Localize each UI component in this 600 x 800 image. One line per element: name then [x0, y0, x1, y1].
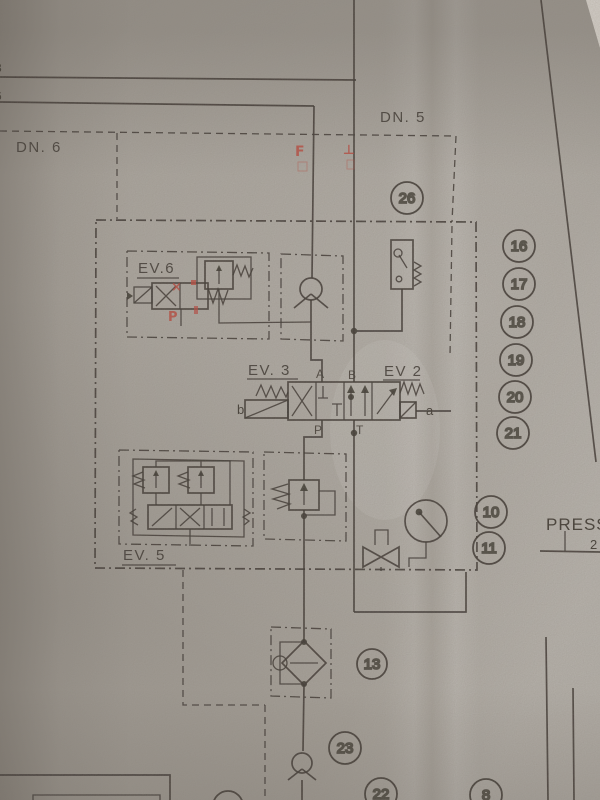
schematic-drawing: 26 16 17 18 19 20 21 10 11 13 23 22 8 DN…: [0, 0, 600, 800]
scanned-hydraulic-schematic-photo: 26 16 17 18 19 20 21 10 11 13 23 22 8 DN…: [0, 0, 600, 800]
photo-grain-overlay: [0, 0, 600, 800]
